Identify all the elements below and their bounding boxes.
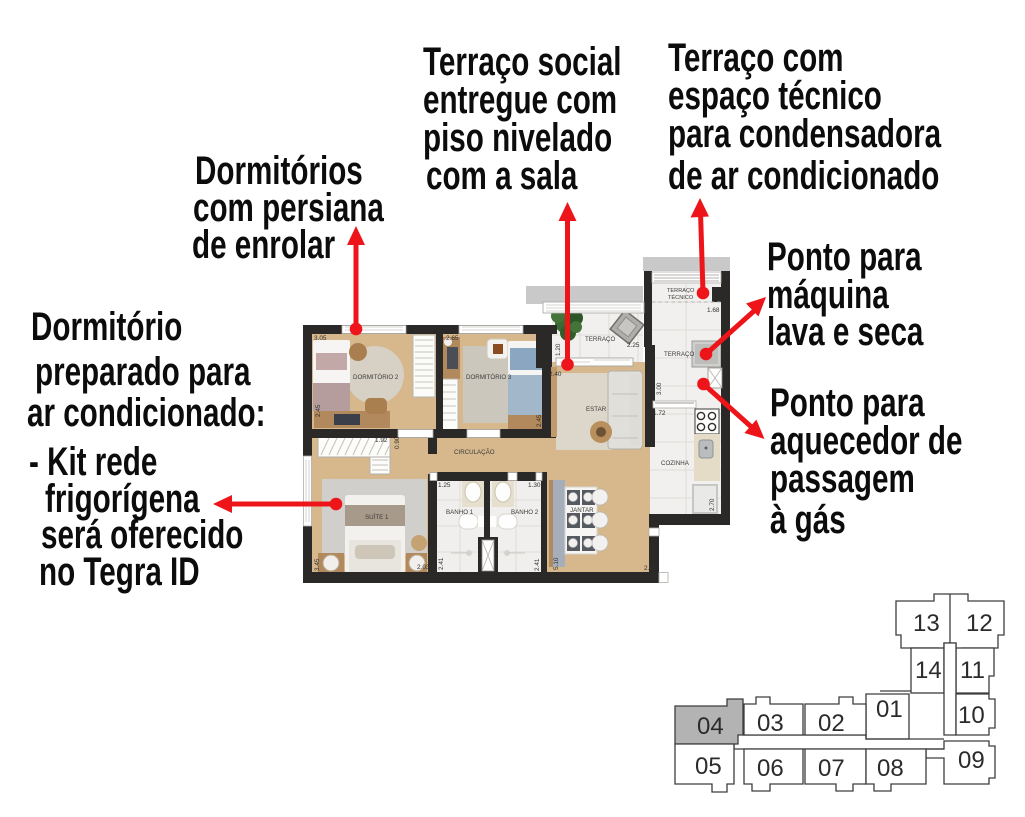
svg-text:3.45: 3.45 [314, 558, 321, 571]
svg-text:TERRAÇO: TERRAÇO [585, 336, 615, 343]
svg-text:1.25: 1.25 [438, 482, 451, 489]
svg-text:3.00: 3.00 [656, 382, 663, 395]
svg-text:2.45: 2.45 [536, 414, 543, 427]
svg-text:1.30: 1.30 [528, 482, 541, 489]
svg-text:07: 07 [818, 755, 845, 782]
svg-text:1.20: 1.20 [555, 343, 562, 356]
svg-text:2.65: 2.65 [446, 335, 459, 342]
svg-text:TERRAÇO: TERRAÇO [664, 351, 694, 358]
svg-text:1.72: 1.72 [653, 410, 666, 417]
svg-text:05: 05 [695, 753, 722, 780]
svg-text:2.40: 2.40 [549, 371, 562, 378]
svg-text:TERRAÇO: TERRAÇO [667, 288, 695, 294]
svg-text:2.45: 2.45 [315, 404, 322, 417]
svg-text:DORMITÓRIO 2: DORMITÓRIO 2 [353, 374, 399, 381]
svg-text:14: 14 [915, 657, 942, 684]
svg-text:1.68: 1.68 [707, 307, 720, 314]
svg-text:06: 06 [757, 755, 784, 782]
svg-text:2.79: 2.79 [644, 565, 657, 572]
svg-text:1.92: 1.92 [375, 437, 388, 444]
svg-text:2.70: 2.70 [709, 498, 716, 511]
svg-text:SUÍTE 1: SUÍTE 1 [365, 514, 389, 521]
svg-text:04: 04 [697, 713, 724, 740]
svg-text:DORMITÓRIO 3: DORMITÓRIO 3 [466, 374, 512, 381]
svg-text:BANHO 2: BANHO 2 [511, 509, 539, 516]
svg-text:ESTAR: ESTAR [586, 406, 607, 413]
svg-text:TÉCNICO: TÉCNICO [668, 294, 694, 301]
svg-text:2.25: 2.25 [627, 342, 640, 349]
svg-text:11: 11 [960, 657, 985, 684]
svg-text:5.10: 5.10 [553, 557, 560, 570]
svg-text:03: 03 [757, 710, 784, 737]
svg-text:CIRCULAÇÃO: CIRCULAÇÃO [454, 449, 495, 456]
svg-text:2.41: 2.41 [534, 558, 541, 571]
svg-text:JANTAR: JANTAR [570, 507, 594, 514]
svg-text:10: 10 [958, 702, 985, 729]
svg-text:2.03: 2.03 [417, 564, 430, 571]
svg-text:0.90: 0.90 [394, 436, 401, 449]
svg-text:2.41: 2.41 [438, 557, 445, 570]
svg-text:09: 09 [958, 747, 985, 774]
svg-text:3.05: 3.05 [314, 335, 327, 342]
svg-text:01: 01 [876, 696, 903, 723]
svg-text:COZINHA: COZINHA [661, 460, 690, 467]
svg-text:08: 08 [877, 755, 904, 782]
svg-text:BANHO 1: BANHO 1 [446, 509, 474, 516]
svg-text:13: 13 [913, 610, 940, 637]
svg-text:12: 12 [966, 610, 993, 637]
svg-text:02: 02 [818, 710, 845, 737]
